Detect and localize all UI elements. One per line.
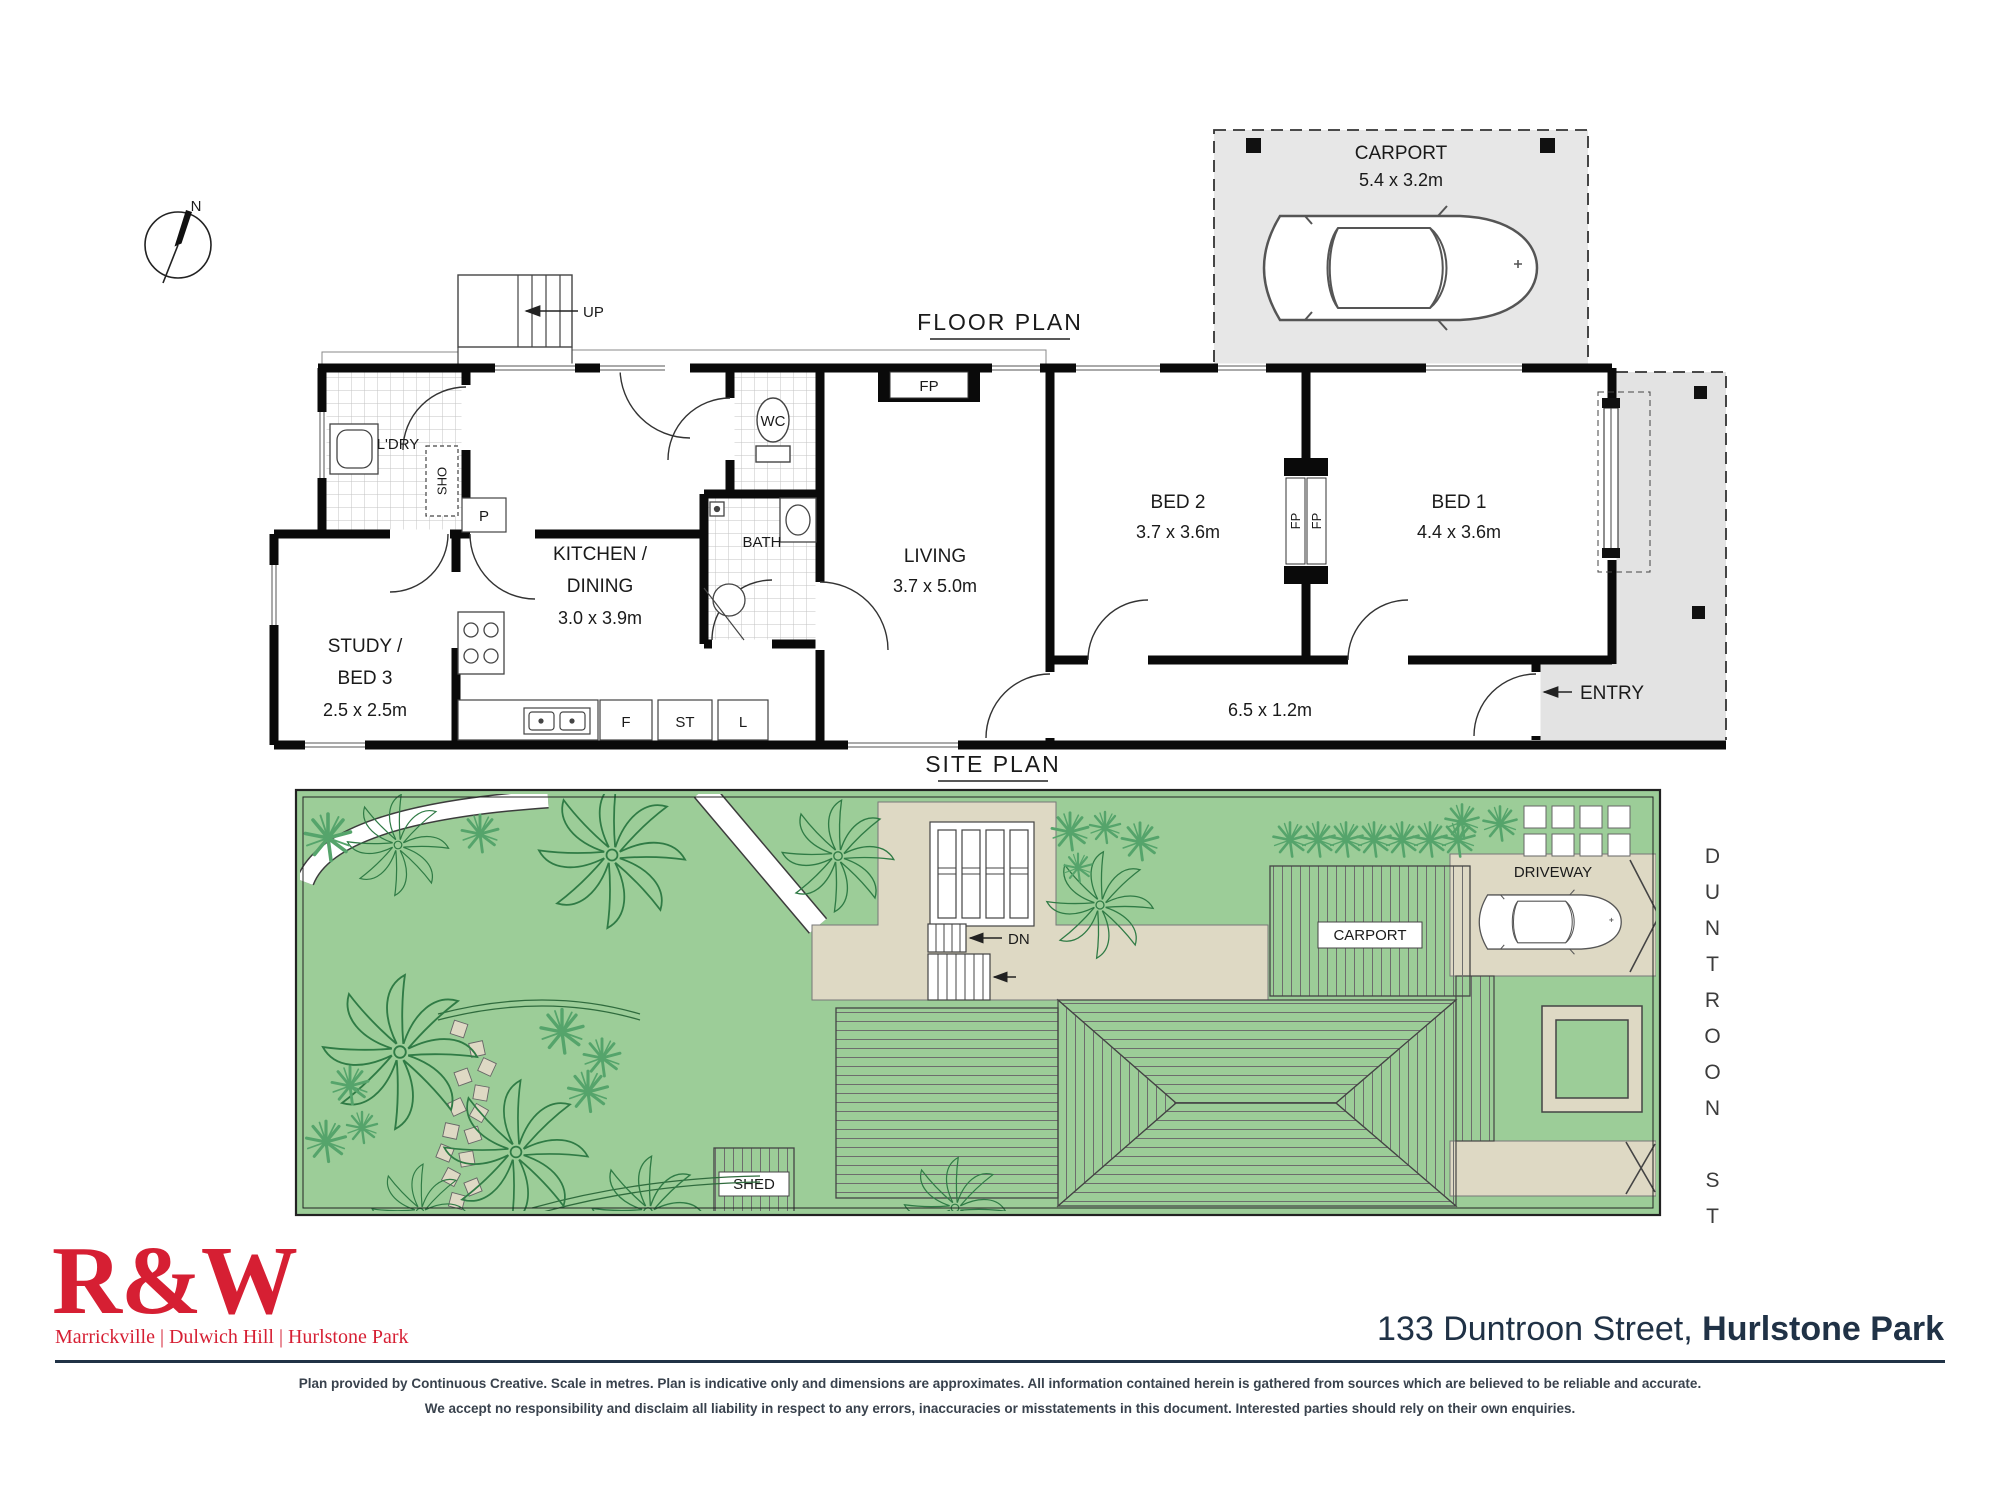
footer-divider <box>55 1360 1945 1363</box>
svg-text:4.4 x 3.6m: 4.4 x 3.6m <box>1417 522 1501 542</box>
svg-text:3.7 x 3.6m: 3.7 x 3.6m <box>1136 522 1220 542</box>
shower-box: SHO <box>426 446 458 516</box>
linen-label: L <box>739 714 747 731</box>
address-street: 133 Duntroon Street, <box>1377 1310 1702 1348</box>
fireplace-living: FP <box>878 366 980 402</box>
carport-label: CARPORT <box>1355 143 1448 164</box>
fireplace-bedrooms: FP FP <box>1284 458 1328 584</box>
disclaimer-line1: Plan provided by Continuous Creative. Sc… <box>0 1372 2000 1397</box>
shower-label: SHO <box>435 467 450 495</box>
hall-dims: 6.5 x 1.2m <box>1228 700 1312 720</box>
floor-plan: FLOOR PLAN CARPORT 5.4 x 3.2m UP <box>270 130 1727 750</box>
fp-label: FP <box>1309 513 1324 530</box>
driveway-label: DRIVEWAY <box>1514 864 1592 881</box>
svg-text:DINING: DINING <box>567 576 634 597</box>
living-labels: LIVING 3.7 x 5.0m <box>893 546 977 596</box>
fp-label: FP <box>1288 513 1303 530</box>
dn-label: DN <box>1008 931 1030 948</box>
svg-text:BED 1: BED 1 <box>1432 492 1487 513</box>
toilet-icon <box>756 398 790 462</box>
address-suburb: Hurlstone Park <box>1702 1310 1944 1348</box>
disclaimer-line2: We accept no responsibility and disclaim… <box>0 1397 2000 1422</box>
planter <box>1542 1006 1642 1112</box>
kitchen-bench <box>458 700 598 740</box>
carport-post <box>1246 138 1261 153</box>
compass-north-label: N <box>191 198 202 215</box>
kitchen-labels: KITCHEN / DINING 3.0 x 3.9m <box>553 544 648 628</box>
stairs-up-label: UP <box>583 304 604 321</box>
shed: SHED <box>714 1148 794 1214</box>
carport-dims: 5.4 x 3.2m <box>1359 170 1443 190</box>
svg-text:BED 3: BED 3 <box>338 668 393 689</box>
veranda-post <box>1692 606 1705 619</box>
shed-label: SHED <box>733 1176 775 1193</box>
agency-offices: Marrickville | Dulwich Hill | Hurlstone … <box>55 1326 409 1349</box>
site-plan-title: SITE PLAN <box>925 751 1061 777</box>
laundry-tub-icon <box>330 424 378 474</box>
veranda-post <box>1694 386 1707 399</box>
closets: F ST L <box>600 700 768 740</box>
compass-needle-head <box>175 210 193 247</box>
pantry-box: P <box>462 498 506 532</box>
svg-text:KITCHEN /: KITCHEN / <box>553 544 648 565</box>
svg-text:3.7 x 5.0m: 3.7 x 5.0m <box>893 576 977 596</box>
laundry-label: L'DRY <box>377 436 420 453</box>
walls <box>274 368 1726 745</box>
front-veranda-roof <box>1456 976 1494 1141</box>
store-label: ST <box>675 714 694 731</box>
bath-label: BATH <box>743 534 782 551</box>
site-carport: CARPORT <box>1270 866 1470 996</box>
svg-text:STUDY /: STUDY / <box>328 636 403 657</box>
car-icon <box>1264 206 1537 330</box>
svg-text:3.0 x 3.9m: 3.0 x 3.9m <box>558 608 642 628</box>
driveway-car-icon <box>1479 890 1621 954</box>
plan-drawing: N FLOOR PLAN CARPORT 5.4 x 3.2m <box>0 0 2000 1500</box>
bed1-labels: BED 1 4.4 x 3.6m <box>1417 492 1501 542</box>
study-labels: STUDY / BED 3 2.5 x 2.5m <box>323 636 407 720</box>
stove-icon <box>458 612 504 674</box>
svg-text:LIVING: LIVING <box>904 546 966 567</box>
floorplan-carport: CARPORT 5.4 x 3.2m <box>1214 130 1588 366</box>
bed2-labels: BED 2 3.7 x 3.6m <box>1136 492 1220 542</box>
wc-label: WC <box>761 413 786 430</box>
floor-plan-title: FLOOR PLAN <box>917 309 1083 335</box>
floorplan-page: N FLOOR PLAN CARPORT 5.4 x 3.2m <box>0 0 2000 1500</box>
disclaimer: Plan provided by Continuous Creative. Sc… <box>0 1372 2000 1422</box>
fp-label: FP <box>919 378 938 395</box>
site-plan: SITE PLAN DN <box>296 751 1660 1269</box>
svg-text:BED 2: BED 2 <box>1151 492 1206 513</box>
front-path <box>1450 1141 1656 1196</box>
fridge-label: F <box>621 714 630 731</box>
svg-text:2.5 x 2.5m: 2.5 x 2.5m <box>323 700 407 720</box>
property-address: 133 Duntroon Street, Hurlstone Park <box>1377 1310 1944 1349</box>
compass: N <box>145 198 211 283</box>
house-roof <box>1058 976 1494 1206</box>
entry-label: ENTRY <box>1580 683 1644 704</box>
pantry-label: P <box>479 508 489 525</box>
street-label: DUNTROON ST <box>1690 845 1724 1215</box>
deck <box>836 1008 1058 1198</box>
carport-post <box>1540 138 1555 153</box>
agency-logo: R&W <box>52 1232 297 1329</box>
site-carport-label: CARPORT <box>1333 927 1406 944</box>
